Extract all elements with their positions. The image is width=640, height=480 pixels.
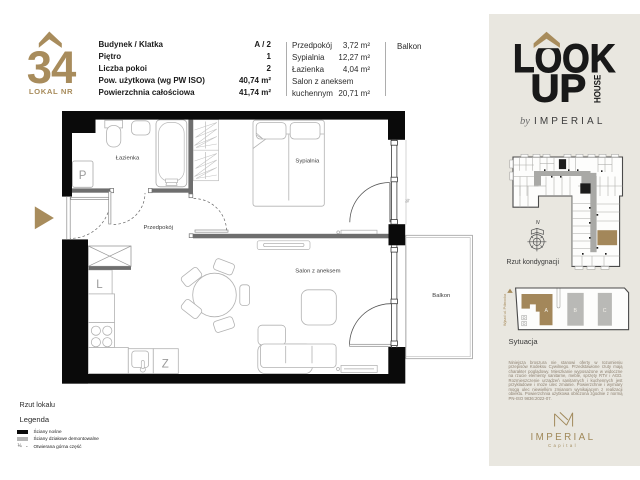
svg-text:L: L xyxy=(96,279,103,291)
svg-text:HOUSE: HOUSE xyxy=(591,75,602,103)
svg-text:Salon z aneksem: Salon z aneksem xyxy=(295,269,340,275)
svg-text:B: B xyxy=(574,308,578,314)
svg-text:A: A xyxy=(545,308,549,314)
svg-text:Przedpokój: Przedpokój xyxy=(144,225,173,231)
svg-text:P: P xyxy=(79,170,87,182)
svg-text:Łazienka: Łazienka xyxy=(116,155,140,161)
svg-text:UP: UP xyxy=(531,68,587,111)
svg-text:Z: Z xyxy=(162,359,169,371)
svg-text:C: C xyxy=(603,308,607,314)
svg-text:Sypialnia: Sypialnia xyxy=(295,158,320,164)
svg-text:Balkon: Balkon xyxy=(432,293,450,299)
svg-text:⅙: ⅙ xyxy=(405,198,412,204)
